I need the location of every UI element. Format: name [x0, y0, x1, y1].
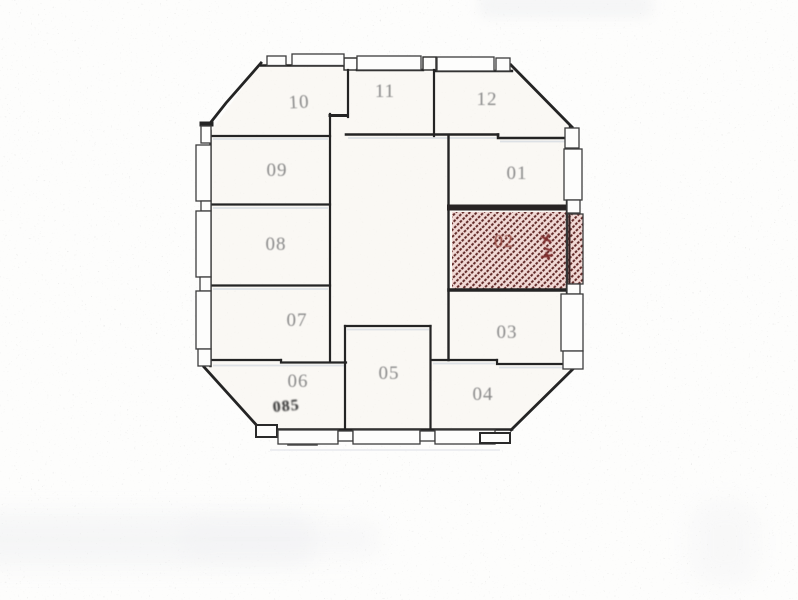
- svg-text:07: 07: [287, 310, 308, 331]
- svg-text:09: 09: [267, 160, 288, 181]
- svg-text:01: 01: [507, 163, 528, 184]
- svg-text:085: 085: [272, 397, 300, 416]
- svg-text:12: 12: [477, 89, 498, 110]
- svg-text:02: 02: [494, 231, 514, 251]
- svg-text:11: 11: [375, 81, 395, 102]
- svg-text:04: 04: [473, 384, 494, 405]
- svg-text:06: 06: [288, 371, 309, 392]
- svg-text:08: 08: [266, 234, 287, 255]
- svg-text:05: 05: [379, 363, 400, 384]
- svg-text:10: 10: [288, 91, 310, 113]
- svg-text:03: 03: [497, 322, 518, 343]
